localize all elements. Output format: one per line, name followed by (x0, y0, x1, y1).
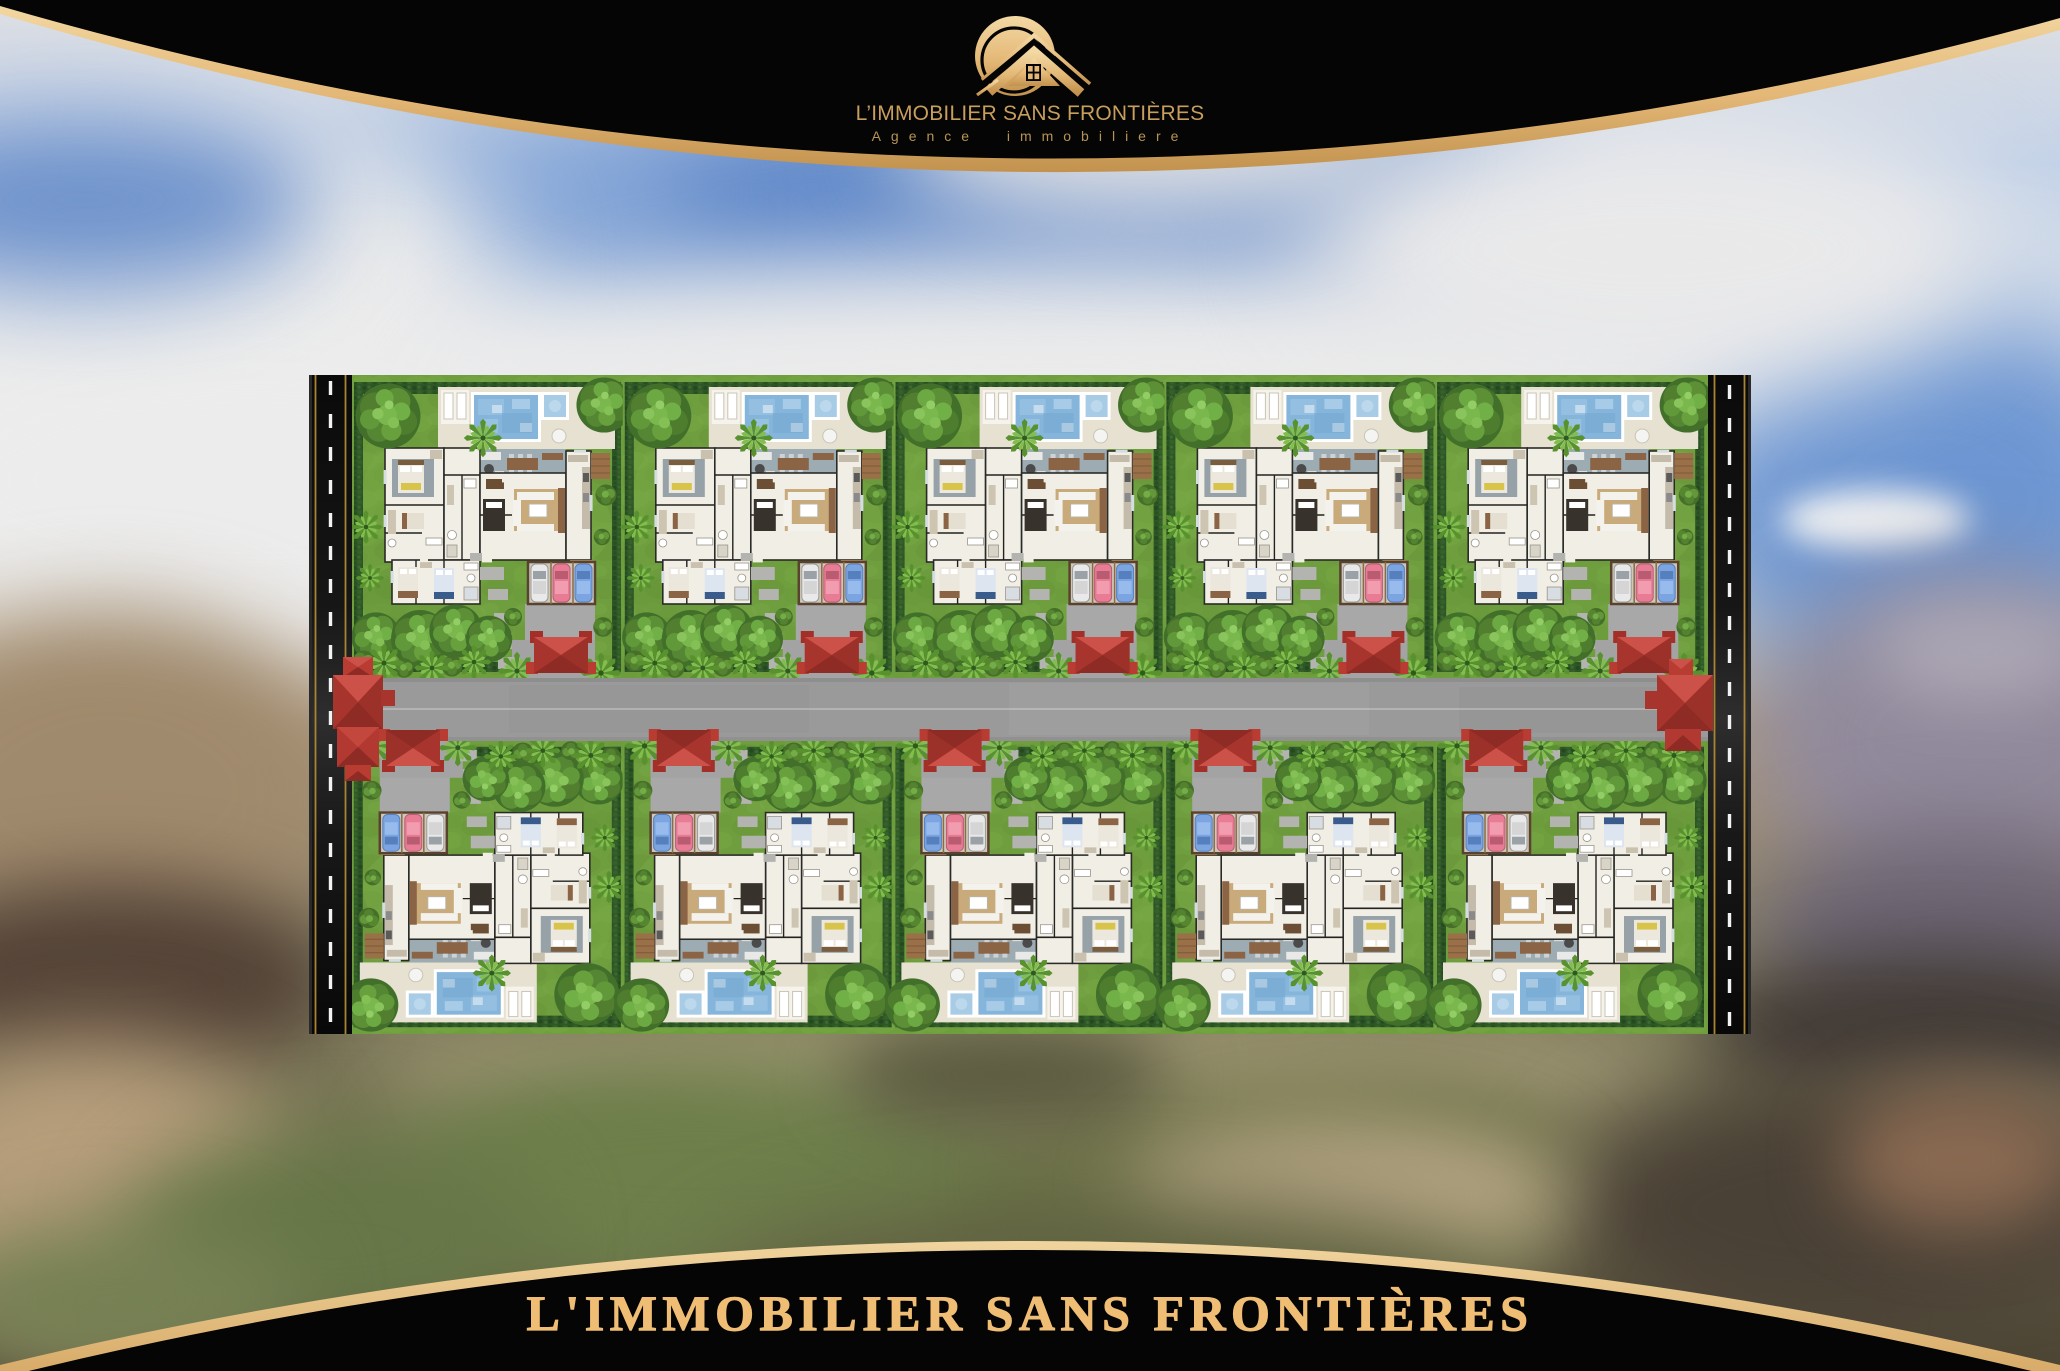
svg-text:L’IMMOBILIER SANS FRONTIÈRES: L’IMMOBILIER SANS FRONTIÈRES (856, 102, 1205, 125)
svg-text:L'IMMOBILIER SANS FRONTIÈRES: L'IMMOBILIER SANS FRONTIÈRES (527, 1285, 1534, 1341)
svg-text:Agence immobiliere: Agence immobiliere (872, 128, 1189, 144)
